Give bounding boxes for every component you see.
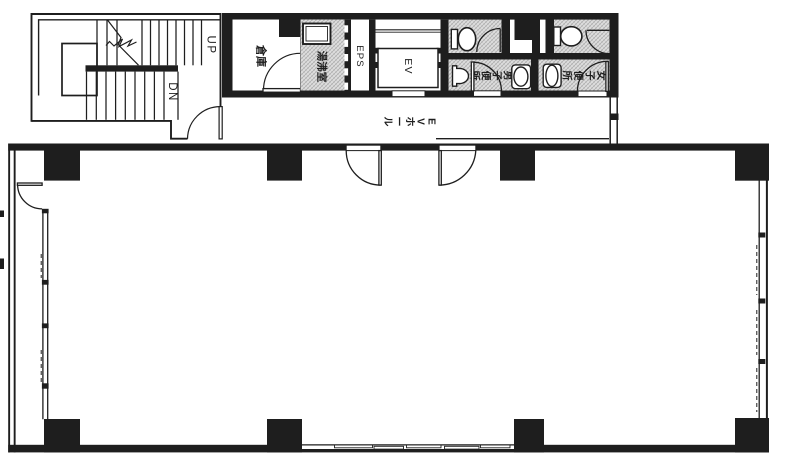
- svg-text:便: 便: [572, 71, 585, 82]
- svg-text:DN: DN: [166, 82, 178, 102]
- svg-text:V: V: [415, 118, 426, 125]
- svg-text:UP: UP: [205, 36, 217, 55]
- svg-text:倉庫: 倉庫: [255, 44, 269, 67]
- svg-text:ー: ー: [393, 117, 404, 127]
- svg-text:E: E: [426, 118, 437, 125]
- svg-text:湯沸室: 湯沸室: [316, 51, 329, 83]
- svg-text:所: 所: [561, 71, 574, 81]
- svg-text:EPS: EPS: [354, 45, 365, 68]
- svg-text:EV: EV: [402, 58, 414, 74]
- svg-text:ホ: ホ: [404, 117, 416, 127]
- svg-text:ル: ル: [382, 117, 393, 127]
